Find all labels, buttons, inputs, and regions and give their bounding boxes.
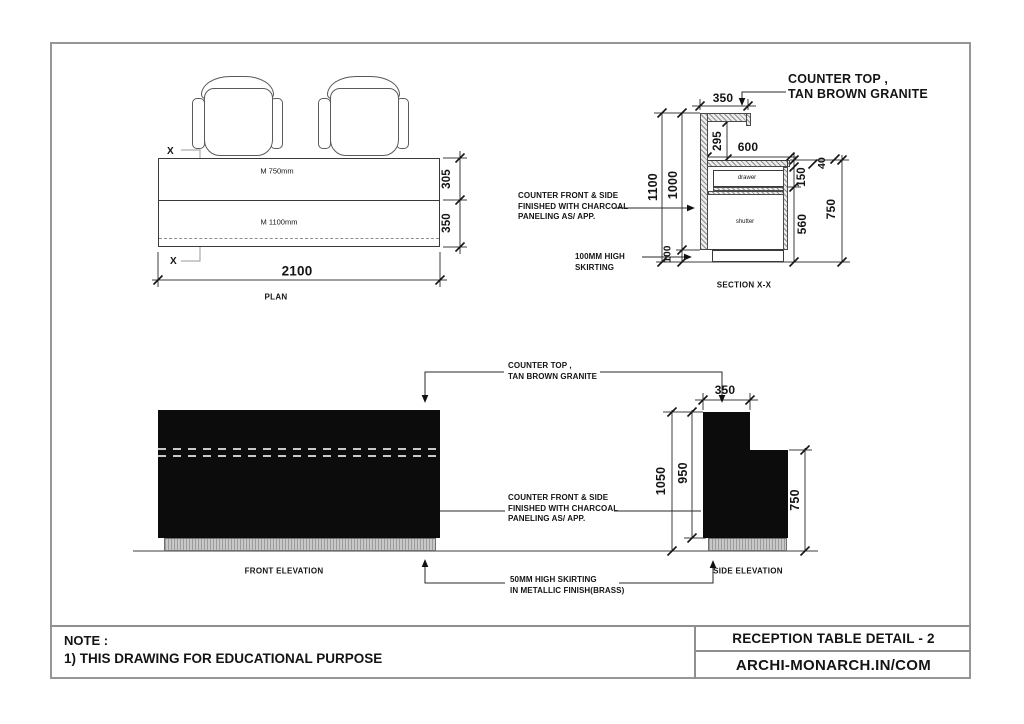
section-dim-600: 600 xyxy=(738,140,759,154)
elevation-front-callout: COUNTER FRONT & SIDE FINISHED WITH CHARC… xyxy=(508,493,618,525)
section-dim-150: 150 xyxy=(796,167,808,187)
section-dim-1100: 1100 xyxy=(646,173,660,201)
front-elevation-skirting xyxy=(164,538,436,551)
note-title: NOTE : xyxy=(64,633,108,648)
side-elevation-lower-step xyxy=(750,450,788,538)
plan-row1-label: M 750mm xyxy=(260,167,293,176)
section-back-panel xyxy=(700,113,708,250)
section-skirting-callout: 100MM HIGH SKIRTING xyxy=(575,252,625,273)
plan-table-divider xyxy=(159,200,439,201)
section-dim-40: 40 xyxy=(816,157,828,169)
note-line: 1) THIS DRAWING FOR EDUCATIONAL PURPOSE xyxy=(64,651,382,666)
side-dim-950: 950 xyxy=(676,462,690,483)
front-elevation-dashed-line xyxy=(158,448,440,450)
plan-table-outline xyxy=(158,158,440,247)
plan-dim-305: 305 xyxy=(441,169,453,189)
callout-line: COUNTER TOP , xyxy=(788,72,928,87)
callout-line: 50MM HIGH SKIRTING xyxy=(510,575,624,586)
side-dim-350: 350 xyxy=(715,383,736,397)
section-dim-100: 100 xyxy=(663,245,674,262)
section-dim-750: 750 xyxy=(824,199,838,220)
elevation-skirting-callout: 50MM HIGH SKIRTING IN METALLIC FINISH(BR… xyxy=(510,575,624,596)
section-right-wall xyxy=(783,167,788,250)
callout-line: PANELING AS/ APP. xyxy=(508,514,618,525)
front-elevation-caption: FRONT ELEVATION xyxy=(245,567,324,576)
callout-line: COUNTER FRONT & SIDE xyxy=(518,191,628,202)
section-drawer-label: drawer xyxy=(738,175,756,181)
section-shutter-label: shutter xyxy=(736,219,754,225)
callout-line: IN METALLIC FINISH(BRASS) xyxy=(510,586,624,597)
section-skirting xyxy=(712,250,784,262)
callout-line: FINISHED WITH CHARCOAL xyxy=(518,202,628,213)
front-elevation-body xyxy=(158,410,440,538)
callout-line: TAN BROWN GRANITE xyxy=(508,372,597,383)
drawing-title-cell: RECEPTION TABLE DETAIL - 2 xyxy=(696,627,971,650)
callout-line: TAN BROWN GRANITE xyxy=(788,87,928,102)
side-dim-750: 750 xyxy=(788,489,802,510)
drawing-sheet: X X M 750mm M 1100mm 305 350 2100 PLAN d… xyxy=(0,0,1024,724)
brand-cell: ARCHI-MONARCH.IN/COM xyxy=(696,652,971,678)
callout-line: COUNTER FRONT & SIDE xyxy=(508,493,618,504)
side-elevation-caption: SIDE ELEVATION xyxy=(713,567,783,576)
section-front-callout: COUNTER FRONT & SIDE FINISHED WITH CHARC… xyxy=(518,191,628,223)
chair-top-view xyxy=(318,76,407,155)
side-elevation-upper-body xyxy=(703,412,750,538)
plan-table-hidden-edge xyxy=(159,238,439,239)
elevation-counter-top-callout: COUNTER TOP , TAN BROWN GRANITE xyxy=(508,361,597,382)
chair-top-view xyxy=(192,76,281,155)
callout-line: PANELING AS/ APP. xyxy=(518,212,628,223)
callout-line: 100MM HIGH xyxy=(575,252,625,263)
plan-dim-350: 350 xyxy=(441,213,453,233)
side-elevation-skirting xyxy=(708,538,787,551)
brand-name: ARCHI-MONARCH.IN/COM xyxy=(736,657,931,674)
section-caption: SECTION X-X xyxy=(717,281,771,290)
side-dim-1050: 1050 xyxy=(654,467,668,496)
section-counter-top-callout: COUNTER TOP , TAN BROWN GRANITE xyxy=(788,72,928,102)
chair-seat xyxy=(330,88,399,156)
section-dim-1000: 1000 xyxy=(666,171,680,200)
drawing-title: RECEPTION TABLE DETAIL - 2 xyxy=(732,631,934,646)
section-marker-bottom: X xyxy=(170,256,177,267)
callout-line: SKIRTING xyxy=(575,263,625,274)
front-elevation-dashed-line xyxy=(158,455,440,457)
section-marker-top: X xyxy=(167,146,174,157)
callout-line: COUNTER TOP , xyxy=(508,361,597,372)
callout-line: FINISHED WITH CHARCOAL xyxy=(508,504,618,515)
section-shelf xyxy=(708,191,787,195)
section-dim-560: 560 xyxy=(795,214,809,235)
plan-caption: PLAN xyxy=(265,293,288,302)
chair-seat xyxy=(204,88,273,156)
plan-row2-label: M 1100mm xyxy=(261,218,298,227)
section-dim-350: 350 xyxy=(713,91,734,105)
section-counter-end-cap xyxy=(746,113,751,126)
plan-dim-2100: 2100 xyxy=(282,264,313,279)
section-dim-295: 295 xyxy=(712,131,724,151)
